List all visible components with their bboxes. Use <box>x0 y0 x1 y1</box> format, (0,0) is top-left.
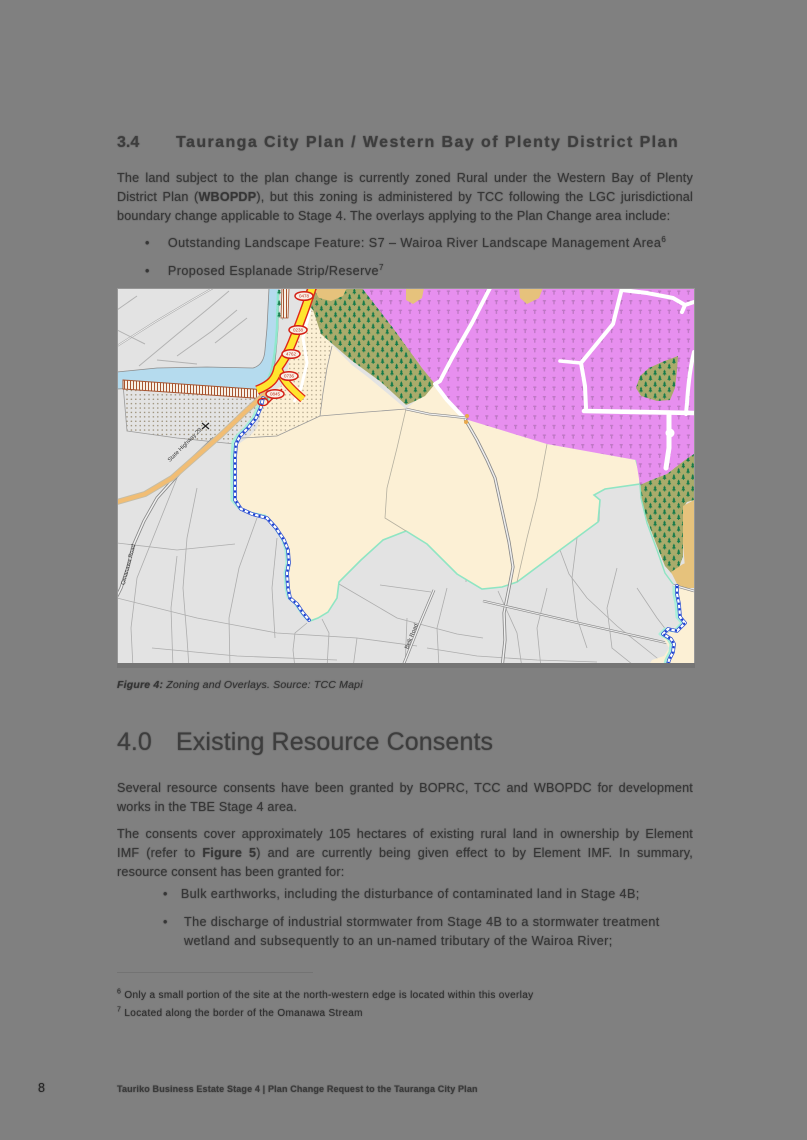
svg-text:0238: 0238 <box>293 328 304 333</box>
svg-text:0845: 0845 <box>270 392 281 397</box>
svg-text:4762: 4762 <box>286 352 297 357</box>
svg-text:0736: 0736 <box>284 374 295 379</box>
svg-text:0478: 0478 <box>299 294 310 299</box>
